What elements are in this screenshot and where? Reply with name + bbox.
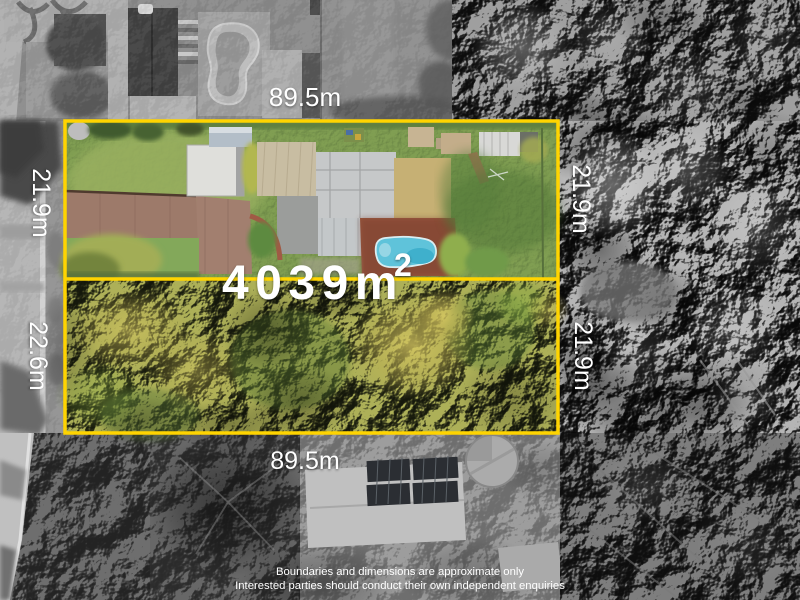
svg-text:2: 2 bbox=[394, 247, 412, 283]
svg-text:22.6m: 22.6m bbox=[24, 321, 52, 390]
svg-text:21.9m: 21.9m bbox=[27, 168, 55, 237]
svg-text:21.9m: 21.9m bbox=[569, 321, 597, 390]
svg-text:89.5m: 89.5m bbox=[270, 447, 339, 475]
svg-text:Interested parties should cond: Interested parties should conduct their … bbox=[235, 580, 565, 592]
svg-text:4039m: 4039m bbox=[222, 257, 404, 310]
svg-text:21.9m: 21.9m bbox=[567, 164, 595, 233]
svg-text:Boundaries and dimensions are: Boundaries and dimensions are approximat… bbox=[276, 566, 524, 578]
svg-text:89.5m: 89.5m bbox=[269, 82, 341, 112]
